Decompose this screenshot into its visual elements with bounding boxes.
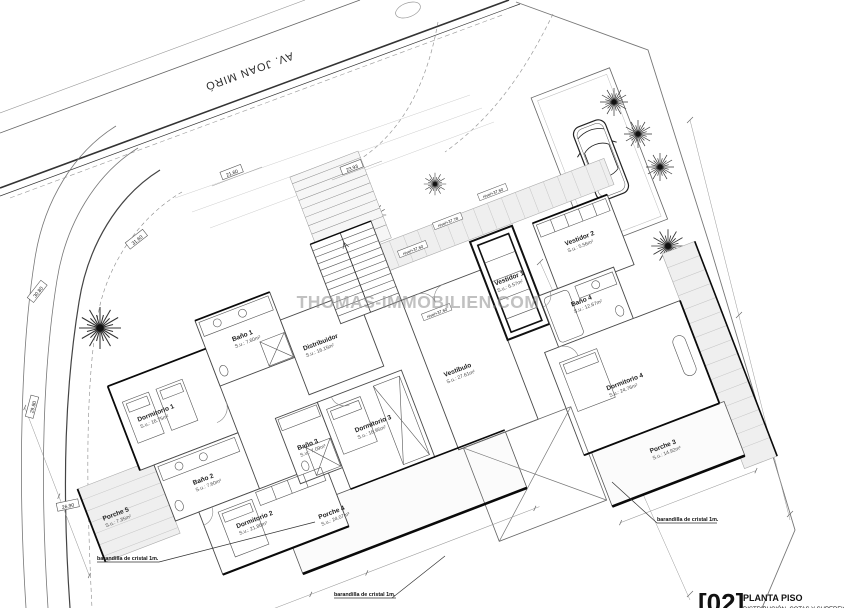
palm-tree-icon (79, 307, 121, 349)
sheet-title: PLANTA PISO (743, 593, 803, 603)
title-block: [02] PLANTA PISO DISTRIBUCIÓN, COTAS Y S… (698, 588, 844, 608)
dimension-box: 26.90 (56, 499, 79, 512)
shrub-outline (393, 0, 422, 21)
palm-tree-icon (424, 173, 446, 195)
palm-tree-icon (646, 153, 674, 181)
floor-plan-page: AV. JOAN MIRÓ (0, 0, 844, 608)
floor-plan-canvas: AV. JOAN MIRÓ (0, 0, 844, 608)
dimension-box: 29.80 (25, 395, 39, 419)
sheet-code: [02] (698, 588, 744, 608)
street-name-text: AV. JOAN MIRÓ (203, 49, 295, 93)
palm-tree-icon (624, 120, 652, 148)
palm-tree-icon (600, 88, 628, 116)
railing-label: barandilla de cristal 1m. (334, 556, 445, 598)
svg-text:barandilla de cristal 1m.: barandilla de cristal 1m. (657, 517, 719, 523)
watermark-text: THOMAS-IMMOBILIEN.COM (297, 292, 540, 312)
svg-text:barandilla de cristal 1m.: barandilla de cristal 1m. (97, 556, 159, 562)
svg-text:26.90: 26.90 (61, 503, 75, 512)
street-name-label: AV. JOAN MIRÓ (203, 49, 295, 93)
dimension-box: 31.60 (125, 229, 148, 249)
svg-text:barandilla de cristal 1m.: barandilla de cristal 1m. (334, 592, 396, 598)
